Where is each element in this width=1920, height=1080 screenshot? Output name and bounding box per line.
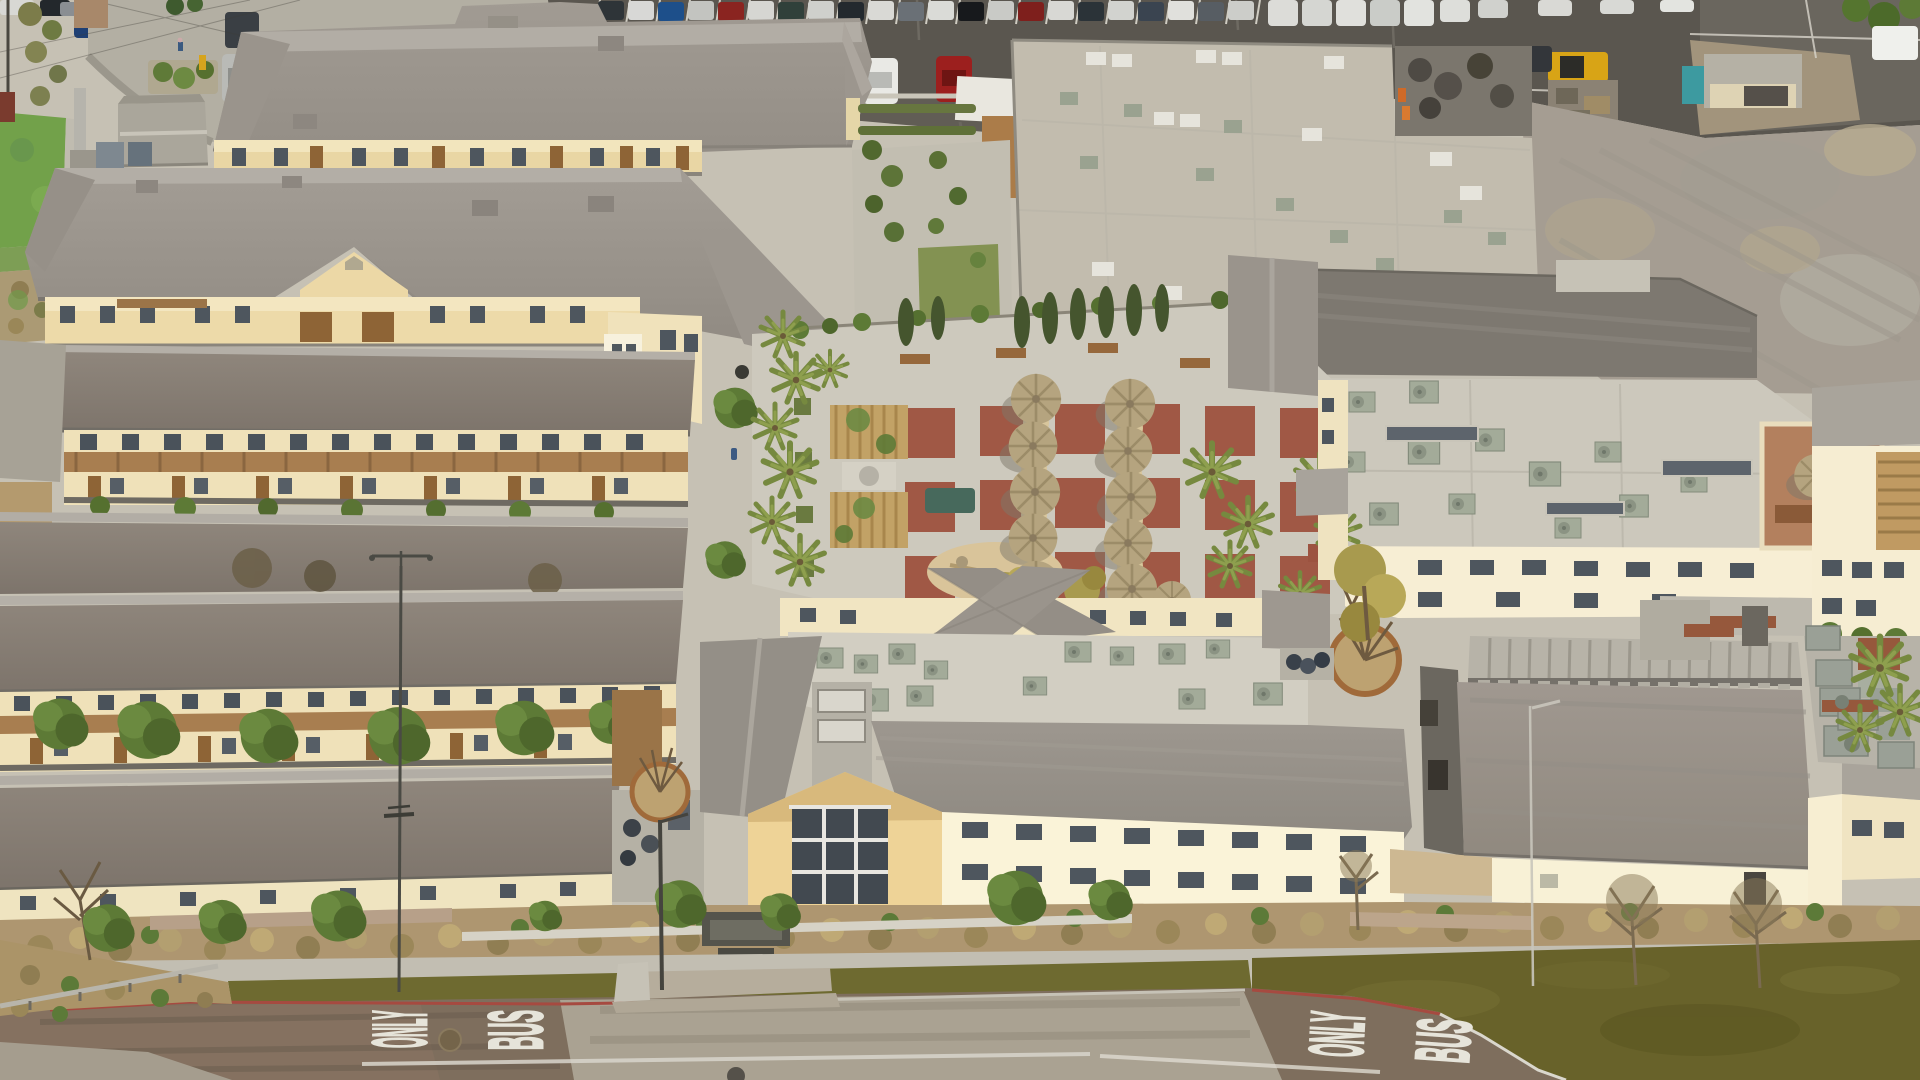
svg-text:ONLY: ONLY: [358, 1010, 443, 1048]
svg-text:BUS: BUS: [1400, 1016, 1487, 1065]
svg-text:ONLY: ONLY: [1293, 1010, 1381, 1059]
svg-text:BUS: BUS: [473, 1010, 558, 1050]
